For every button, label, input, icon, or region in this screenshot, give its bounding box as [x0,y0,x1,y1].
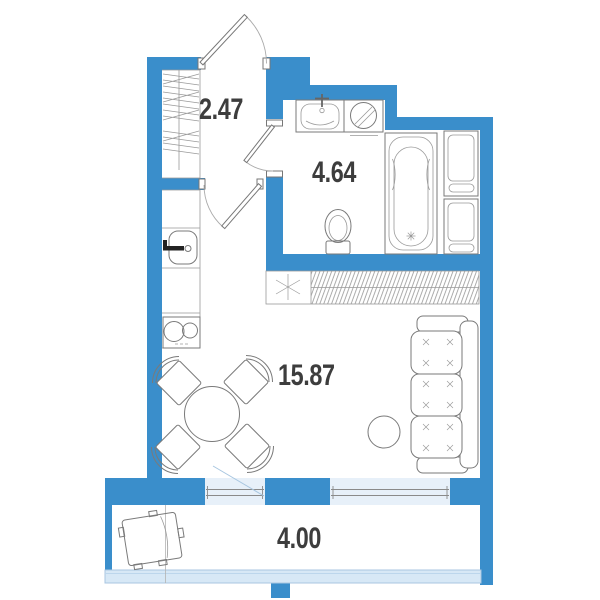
wall-bathroom-top [283,85,397,100]
sink-drain [320,108,324,112]
wall-bathroom-bottom [266,254,480,271]
shaft-upper-vent [449,184,474,192]
shaft-cabinets [444,131,478,254]
shaft-lower [444,199,478,254]
shaft-lower-panel [448,203,474,241]
door-swing-arc [204,185,223,227]
floor-plan-drawing: 2.47 4.64 15.87 4.00 [0,0,600,600]
wall-balcony-band-mid [265,478,330,505]
burner-small [183,323,198,338]
door-leaf [244,125,274,163]
wall-bathroom-left-upper [266,100,283,119]
tub-drain-icon [407,232,416,241]
entrance-door [198,15,270,69]
shaft-upper-panel [448,135,474,181]
tub-grips [393,159,430,190]
sofa-backrest [460,321,478,468]
wall-top-right [385,117,493,130]
closet-strip [266,271,479,304]
area-value: 4.00 [277,521,321,554]
chair-nub [178,528,184,538]
bathtub [385,133,437,254]
washing-machine [344,100,383,136]
sink-cabinet [296,100,344,132]
stove [163,317,200,348]
door-swing-arc [245,162,273,172]
stove-body [163,317,200,348]
balcony-area-label: 4.00 [277,521,321,554]
door-post [267,120,283,126]
living-area-label: 15.87 [278,358,335,391]
area-value: 2.47 [199,92,243,125]
sofa [411,316,478,473]
hallway-wardrobe [162,70,200,178]
sofa-cushion [411,374,462,416]
dining-table [185,387,240,442]
window-pane [330,478,450,505]
door-post [267,171,283,177]
balcony-chair [117,507,188,571]
floor-plan: 2.47 4.64 15.87 4.00 [0,0,600,600]
washer-glass-lines [355,107,375,127]
door-leaf [222,184,262,229]
wall-right-outer [480,117,493,585]
wall-hallway-stub [147,178,205,190]
sink-curve [306,121,334,125]
wall-balcony-band-left [105,478,205,505]
hallway-room-door [199,179,263,229]
balcony-railing [105,570,481,583]
bathroom-sink [296,94,344,132]
wall-balcony-left [105,505,112,570]
hallway-area-label: 2.47 [199,92,243,125]
shaft-lower-vent [449,244,474,252]
wardrobe-outline [162,70,200,178]
door-swing-arc [246,16,267,64]
sofa-cushion [411,331,462,374]
window-living [330,478,450,505]
hanger-lines-lower [163,131,199,154]
railing-band [105,570,481,583]
area-value: 4.64 [312,155,356,188]
bathroom-door [244,120,283,177]
wall-top-step [385,100,397,117]
kitchen-counter [162,190,200,348]
faucet-base [163,240,167,246]
hanger-lines-upper [163,74,199,121]
tub-basin [394,147,428,246]
faucet-knob [185,246,191,252]
toilet-bowl-inner [329,216,347,241]
faucet-arm [163,246,184,251]
door-leaf [200,15,247,65]
side-table [368,416,400,448]
area-value: 15.87 [278,358,335,391]
wall-balcony-band-right [450,478,493,505]
toilet [325,210,351,255]
burner-large [164,322,184,342]
chair-seat [122,512,183,566]
wall-left-outer [147,57,162,478]
wall-bathroom-left-lower [266,177,283,254]
wall-entry-left [147,57,201,70]
dining-set [152,356,274,474]
bathroom-area-label: 4.64 [312,155,356,188]
sofa-cushion [411,416,462,458]
light-point-icon [276,274,300,300]
